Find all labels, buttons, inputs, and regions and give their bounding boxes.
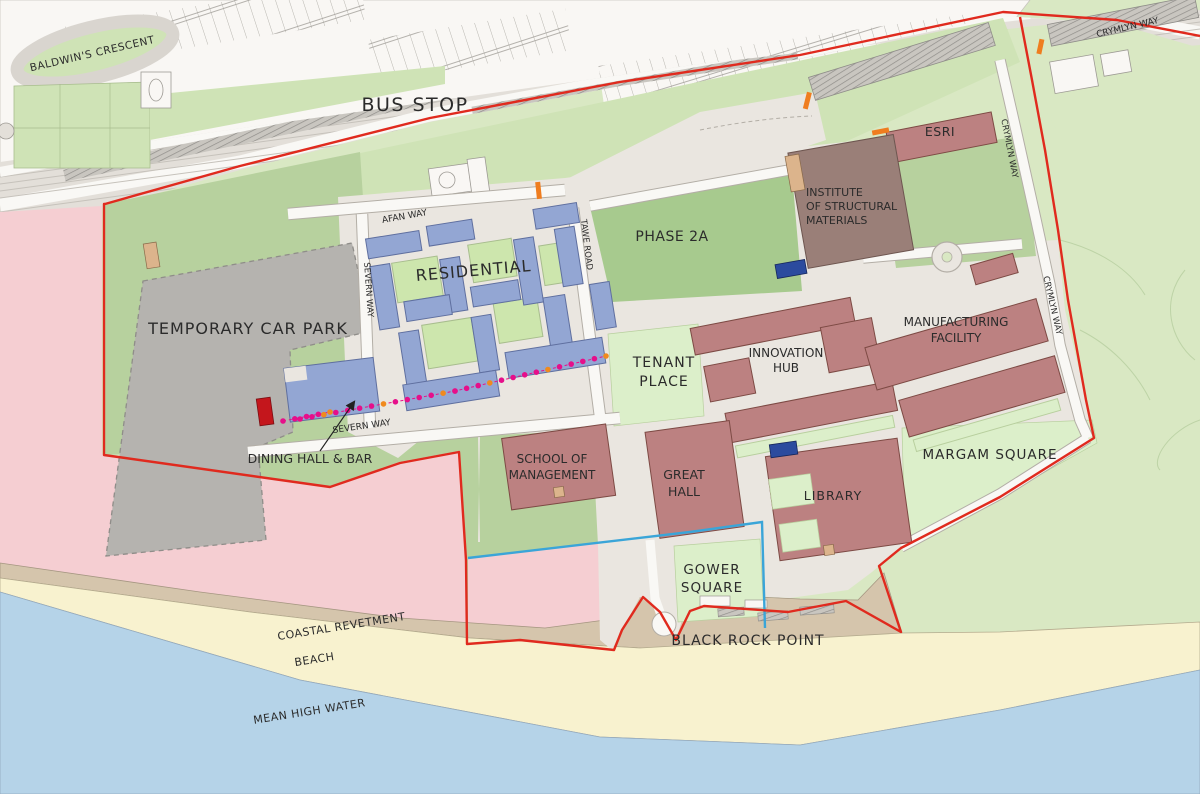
route-dot bbox=[592, 356, 598, 362]
label-great-line1: GREAT bbox=[663, 467, 705, 482]
label-tenant-line2: PLACE bbox=[639, 374, 689, 390]
mini-roundabout bbox=[0, 123, 14, 139]
depot-building bbox=[1100, 50, 1131, 77]
label-esri: ESRI bbox=[925, 124, 955, 139]
route-dot bbox=[297, 416, 303, 422]
label-margam-square: MARGAM SQUARE bbox=[922, 447, 1057, 463]
label-ism-line3: MATERIALS bbox=[806, 214, 867, 227]
route-dot bbox=[333, 410, 339, 416]
route-dot bbox=[405, 397, 411, 403]
label-phase-2a: PHASE 2A bbox=[635, 229, 708, 245]
route-dot bbox=[428, 393, 434, 399]
label-gower-line2: SQUARE bbox=[681, 580, 743, 596]
route-dot bbox=[292, 416, 298, 422]
route-dot bbox=[603, 353, 609, 359]
route-dot bbox=[545, 367, 551, 373]
route-dot bbox=[280, 418, 286, 424]
label-innovation-line1: INNOVATION bbox=[749, 346, 824, 360]
route-dot bbox=[416, 395, 422, 401]
label-black-rock-point: BLACK ROCK POINT bbox=[671, 633, 824, 649]
route-dot bbox=[522, 372, 528, 378]
route-dot bbox=[452, 388, 458, 394]
route-dot bbox=[357, 405, 363, 411]
green-blocks bbox=[14, 82, 150, 168]
pavilion-building-2 bbox=[428, 163, 472, 196]
label-manufacturing-line1: MANUFACTURING bbox=[904, 315, 1009, 329]
tan-structure bbox=[823, 544, 834, 555]
label-library: LIBRARY bbox=[804, 488, 862, 503]
label-dining-hall: DINING HALL & BAR bbox=[248, 451, 373, 466]
label-ism-line1: INSTITUTE bbox=[806, 186, 863, 199]
route-dot bbox=[369, 403, 375, 409]
route-dot bbox=[316, 412, 322, 418]
label-temporary-car-park: TEMPORARY CAR PARK bbox=[147, 319, 348, 338]
label-innovation-line2: HUB bbox=[773, 361, 799, 375]
route-dot bbox=[309, 414, 315, 420]
tan-structure bbox=[553, 486, 564, 497]
route-dot bbox=[381, 401, 387, 407]
route-dot bbox=[557, 364, 563, 370]
route-dot bbox=[534, 369, 540, 375]
route-dot bbox=[499, 377, 505, 383]
label-school-line1: SCHOOL OF bbox=[517, 452, 588, 466]
label-manufacturing-line2: FACILITY bbox=[931, 331, 982, 345]
route-dot bbox=[304, 414, 310, 420]
route-dot bbox=[321, 412, 327, 418]
route-dot bbox=[475, 383, 481, 389]
route-dot bbox=[464, 386, 470, 392]
label-bus-stop: BUS STOP bbox=[361, 94, 468, 116]
route-dot bbox=[440, 390, 446, 396]
route-dot bbox=[568, 361, 574, 367]
route-dot bbox=[580, 359, 586, 365]
route-dot bbox=[327, 409, 333, 415]
label-ism-line2: OF STRUCTURAL bbox=[806, 200, 898, 213]
route-dot bbox=[510, 375, 516, 381]
label-great-line2: HALL bbox=[668, 484, 700, 499]
pavilion-building bbox=[141, 72, 171, 108]
label-gower-line1: GOWER bbox=[683, 562, 740, 578]
campus-map: BALDWIN'S CRESCENT BUS STOP CRYMLYN WAY … bbox=[0, 0, 1200, 794]
route-dot bbox=[487, 380, 493, 386]
label-tenant-line1: TENANT bbox=[632, 355, 695, 371]
label-school-line2: MANAGEMENT bbox=[509, 468, 596, 482]
route-dot bbox=[393, 399, 399, 405]
